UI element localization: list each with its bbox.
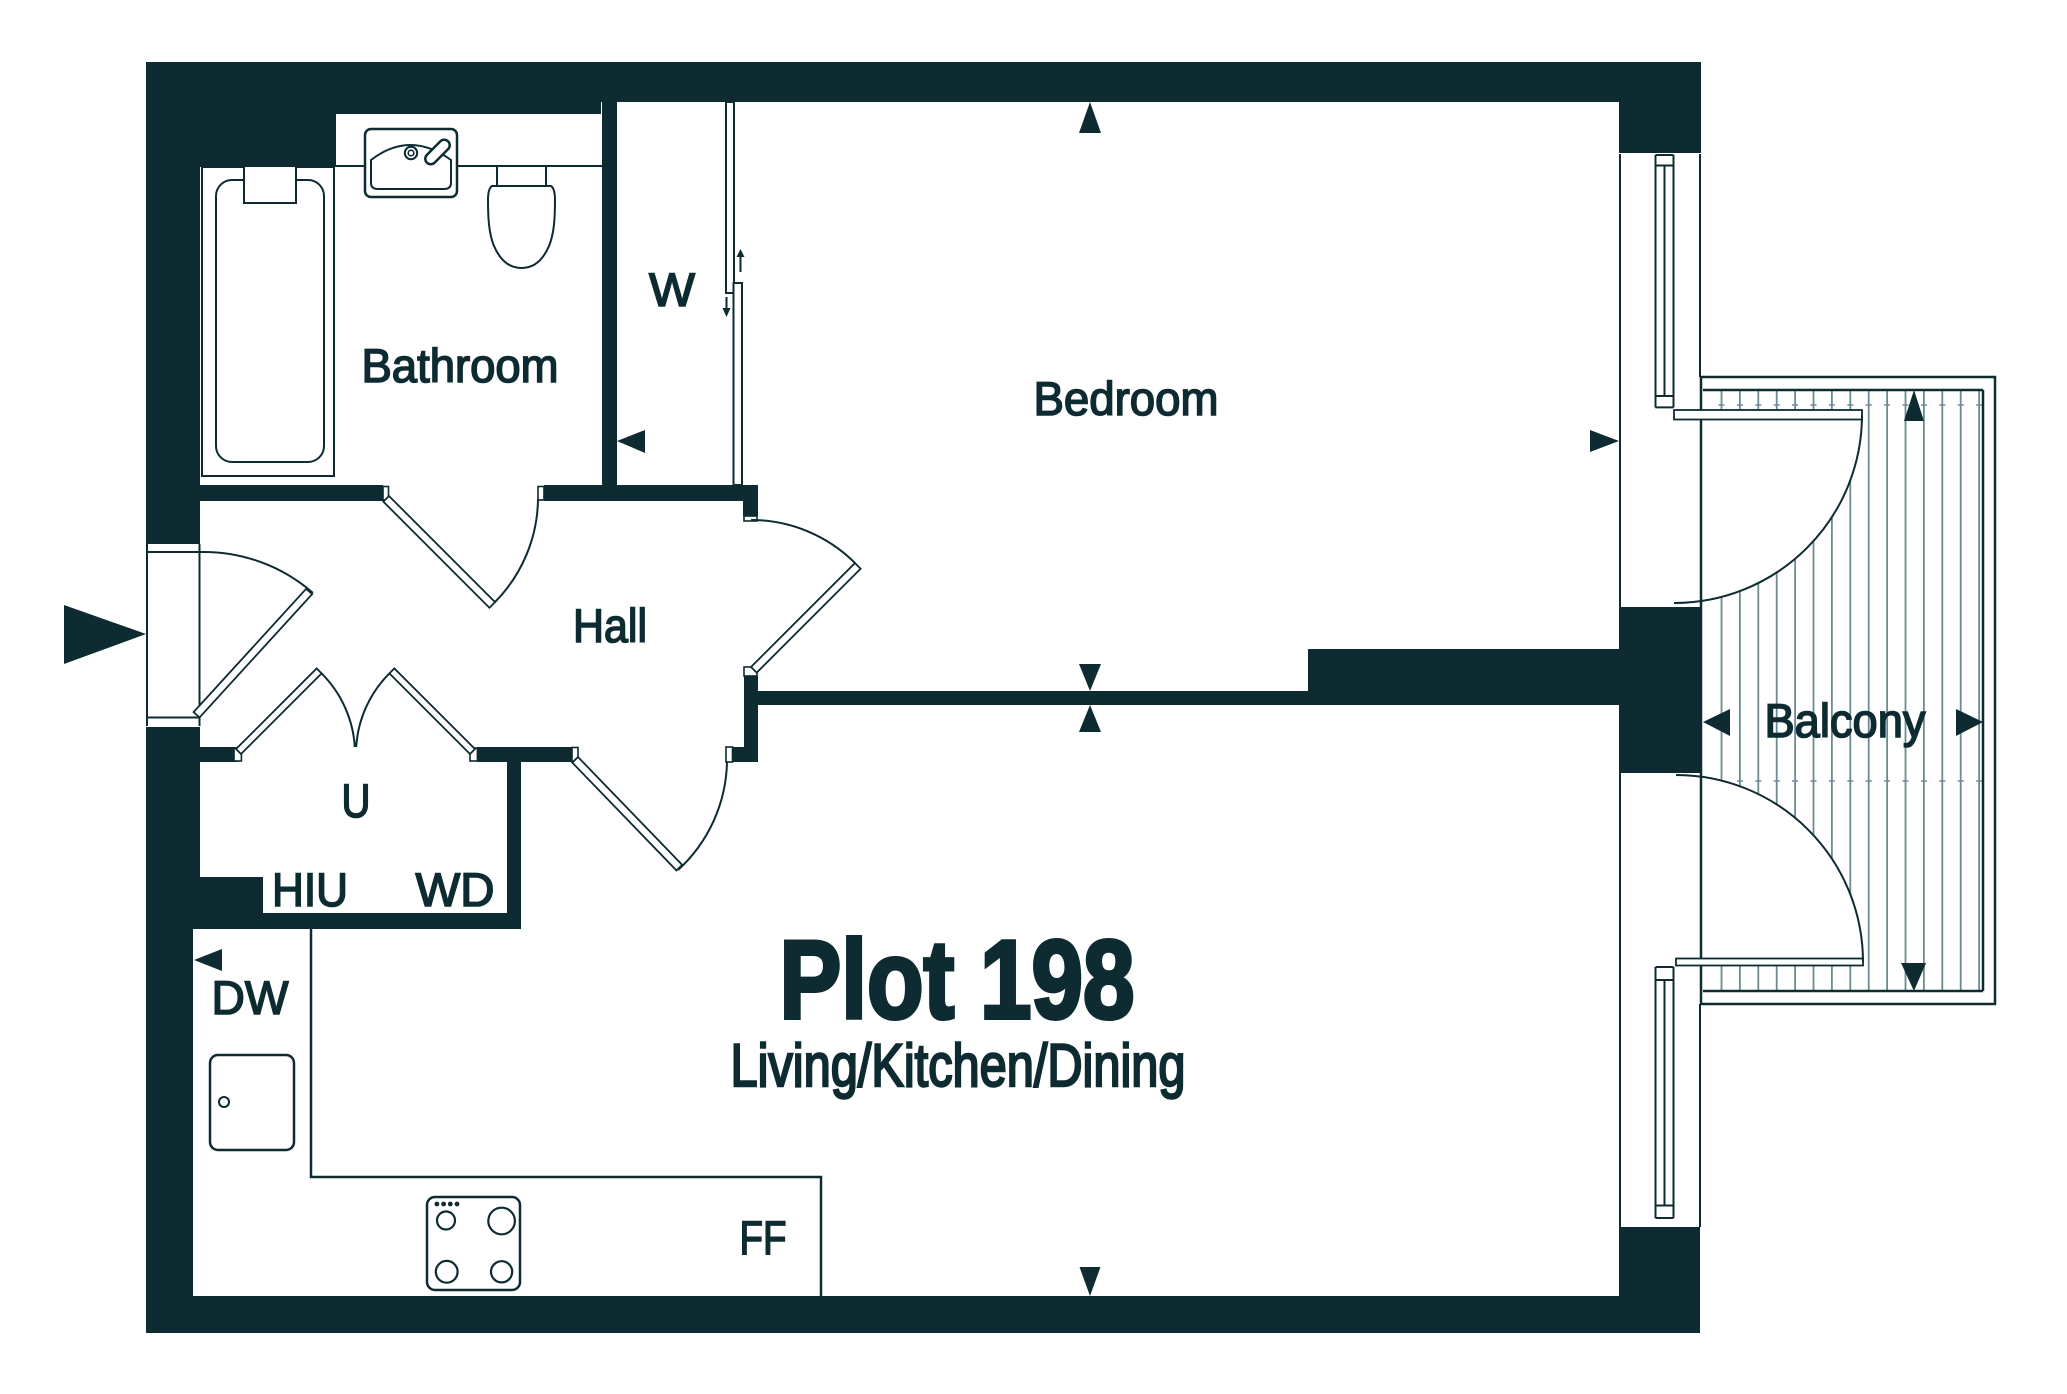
svg-text:Living/Kitchen/Dining: Living/Kitchen/Dining <box>731 1032 1186 1099</box>
svg-text:U: U <box>342 774 371 827</box>
svg-text:Balcony: Balcony <box>1765 694 1926 747</box>
svg-text:FF: FF <box>740 1211 787 1264</box>
svg-text:Bathroom: Bathroom <box>362 339 559 392</box>
svg-text:W: W <box>649 263 696 316</box>
svg-text:HIU: HIU <box>272 863 348 916</box>
svg-text:Plot 198: Plot 198 <box>780 918 1135 1042</box>
svg-text:WD: WD <box>416 863 495 916</box>
svg-text:Hall: Hall <box>573 599 647 652</box>
svg-text:Bedroom: Bedroom <box>1034 372 1219 425</box>
svg-text:DW: DW <box>212 971 290 1024</box>
